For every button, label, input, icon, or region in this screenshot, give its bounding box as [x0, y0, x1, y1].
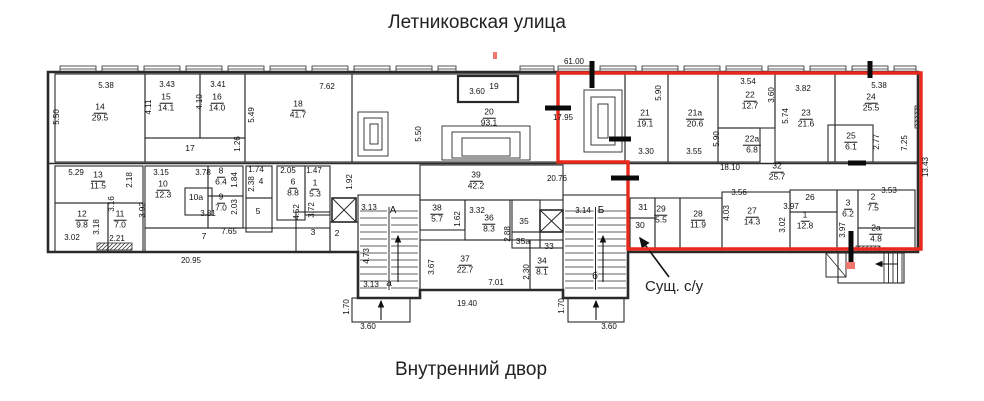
dim-label: 13.43: [922, 157, 930, 177]
dim-label: 3.97: [839, 222, 847, 238]
dim-label: 3.56: [731, 189, 747, 197]
dim-label: 1.74: [248, 166, 264, 174]
dim-label: 4.73: [363, 248, 371, 264]
room-number-3: 3: [311, 228, 316, 237]
dim-label: 3.97: [783, 203, 799, 211]
room-label-23: 2321.6: [798, 109, 815, 130]
dim-label: 5.90: [655, 85, 663, 101]
dim-label: 3.13: [363, 281, 379, 289]
dim-label: 2.05: [280, 167, 296, 175]
dim-label: 3.53: [881, 187, 897, 195]
highlight-outline-layer: [493, 52, 921, 269]
room-label-20: 2093.1: [481, 108, 498, 129]
dim-label: 3.60: [360, 323, 376, 331]
floor-plan-page: Летниковская улица 1429.51514.11614.0184…: [0, 0, 984, 401]
room-label-21: 2119.1: [637, 109, 654, 130]
dim-label: 3.18: [93, 219, 101, 235]
room-number-2: 2: [335, 229, 340, 238]
room-number-35: 35: [519, 217, 528, 226]
dim-label: 1.26: [234, 136, 242, 152]
dim-label: 20.76: [547, 175, 567, 183]
dim-label: 3.16: [108, 196, 116, 212]
room-label-38: 385.7: [430, 204, 443, 225]
room-label-11: 117.0: [114, 210, 127, 231]
dim-label: 4.03: [723, 205, 731, 221]
dim-label: 1.70: [343, 299, 351, 315]
room-label-18: 1841.7: [290, 100, 307, 121]
dim-label: 1.84: [231, 172, 239, 188]
room-number-7: 7: [202, 232, 207, 241]
dim-label: 2.03: [231, 199, 239, 215]
room-label-37: 3722.7: [457, 255, 474, 276]
dim-label: 3.15: [153, 169, 169, 177]
dim-label: 3.60: [768, 87, 776, 103]
dim-label: 5.38: [98, 82, 114, 90]
dim-label: 2.88: [504, 226, 512, 242]
dim-label: 4.11: [145, 100, 153, 115]
corridor-17: [145, 138, 245, 162]
dim-label: 7.62: [319, 83, 335, 91]
dim-label: 5.50: [53, 109, 61, 125]
dim-label: 5.50: [415, 126, 423, 142]
room-label-28: 2811.9: [690, 210, 706, 231]
room-label-8: 86.4: [215, 167, 227, 188]
dim-label: 7.65: [221, 228, 237, 236]
dim-label: 5.38: [871, 82, 887, 90]
dim-label: 1.70: [558, 298, 566, 314]
room-label-27: 2714.3: [744, 207, 761, 228]
dim-label: 3.41: [210, 81, 226, 89]
dim-label: 3.67: [428, 259, 436, 275]
room-label-14: 1429.5: [92, 103, 109, 124]
dim-label: 7.01: [488, 279, 504, 287]
room-label-32: 3225.7: [769, 162, 786, 183]
dim-label: 3.81: [200, 210, 216, 218]
dim-label: 3.78: [195, 169, 211, 177]
dim-label: 1.92: [346, 174, 354, 190]
dim-label: 3.82: [795, 85, 811, 93]
dim-label: 3.92: [139, 202, 147, 218]
room-number-30: 30: [635, 221, 644, 230]
dim-label: 19.40: [457, 300, 477, 308]
room-number-26: 26: [805, 193, 814, 202]
floor-plan-drawing: [0, 0, 984, 401]
dim-label: 3.60: [601, 323, 617, 331]
room-label-39: 3942.2: [468, 171, 485, 192]
room-label-22: 2212.7: [742, 91, 759, 112]
room-label-21а: 21а20.6: [686, 109, 704, 130]
room-label-16: 1614.0: [209, 93, 226, 114]
room-label-10: 1012.3: [155, 180, 172, 201]
dim-label: 2.18: [126, 172, 134, 188]
room-label-12: 129.8: [75, 210, 88, 231]
dim-label: 3.02: [64, 234, 80, 242]
room-label-15: 1514.1: [158, 93, 175, 114]
walls-layer: [48, 66, 922, 322]
room-label-1: 112.8: [797, 211, 814, 232]
room-label-3: 36.2: [842, 199, 854, 220]
room-label-24: 2425.5: [863, 93, 880, 114]
entrance-19: [458, 76, 518, 102]
dim-label: 3.02: [779, 217, 787, 233]
dim-label: 20.95: [181, 257, 201, 265]
dim-label: 2.21: [109, 235, 125, 243]
existing-bathroom-callout: Сущ. с/у: [645, 278, 703, 295]
dim-label: 1.47: [306, 167, 322, 175]
room-label-9: 97.0: [215, 193, 227, 214]
dim-label: 4.10: [196, 94, 204, 110]
dim-label: 5.49: [248, 107, 256, 123]
room-label-25: 256.1: [844, 132, 857, 153]
dim-label: 5.74: [782, 108, 790, 124]
room-label-29: 295.5: [654, 205, 667, 226]
dim-label: 3.14: [575, 207, 591, 215]
dim-label: 17.95: [553, 114, 573, 122]
room-number-10а: 10а: [189, 193, 203, 202]
dim-label: 3.13: [361, 204, 377, 212]
dim-label: 61.00: [564, 58, 584, 66]
dim-label: 3.60: [469, 88, 485, 96]
room-number-4: 4: [259, 177, 264, 186]
room-label-6: 68.8: [287, 178, 299, 199]
room-number-Б: Б: [598, 206, 605, 216]
courtyard-title: Внутренний двор: [395, 359, 547, 381]
room-number-17: 17: [185, 144, 194, 153]
room-number-31: 31: [638, 203, 647, 212]
dim-label: 7.25: [901, 135, 909, 151]
room-number-5: 5: [256, 207, 261, 216]
dim-label: 2.77: [873, 134, 881, 150]
dim-label: 2.30: [523, 264, 531, 280]
hall-39: [420, 165, 563, 200]
room-number-33: 33: [544, 242, 553, 251]
room-number-б: б: [592, 272, 598, 282]
room-number-а: а: [386, 279, 392, 289]
dim-label: 5.90: [713, 131, 721, 147]
room-label-22а: 22а6.8: [743, 135, 761, 156]
dim-label: 2.38: [248, 176, 256, 192]
room-number-А: А: [390, 206, 397, 216]
dim-label: 3.72: [308, 202, 316, 218]
dim-label: 4.52: [293, 204, 301, 220]
dim-label: 18.10: [720, 164, 740, 172]
room-label-13: 1311.5: [90, 171, 106, 192]
room-number-35а: 35а: [516, 237, 530, 246]
dim-label: 1.62: [454, 211, 462, 227]
room-label-1: 15.3: [309, 179, 321, 200]
dim-label: 3.32: [469, 207, 485, 215]
room-label-34: 348.1: [535, 257, 548, 278]
room-label-36: 368.3: [482, 214, 495, 235]
room-number-19: 19: [489, 82, 498, 91]
corridor-7: [145, 228, 330, 252]
dim-label: 5.29: [68, 169, 84, 177]
dim-label: 3.54: [740, 78, 756, 86]
dim-label: 3.55: [686, 148, 702, 156]
room-label-2: 27.5: [867, 193, 879, 214]
dim-label: 3.43: [159, 81, 175, 89]
room-label-2а: 2а4.8: [869, 224, 882, 245]
dim-label: 3.30: [638, 148, 654, 156]
